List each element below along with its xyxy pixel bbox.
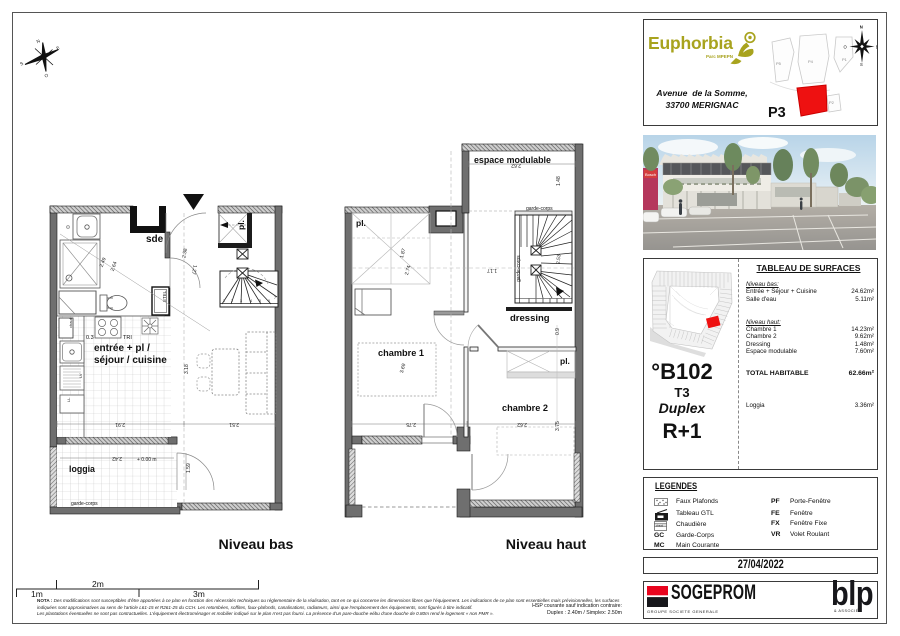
svg-text:garde-corps: garde-corps [526,206,553,212]
svg-text:2.51: 2.51 [229,421,239,427]
svg-text:O: O [44,72,50,78]
svg-text:chambre 1: chambre 1 [378,348,424,358]
svg-text:loggia: loggia [69,464,95,474]
svg-text:dressing: dressing [510,313,550,324]
svg-text:sde: sde [146,234,164,245]
svg-text:1.59: 1.59 [186,463,192,473]
svg-text:chauf: chauf [68,317,73,328]
svg-text:2.53: 2.53 [556,254,563,264]
svg-text:+ 0.00 m: + 0.00 m [137,457,157,463]
svg-text:0.9: 0.9 [555,328,561,335]
svg-text:1.87: 1.87 [399,248,407,259]
svg-text:entrée + pl /: entrée + pl / [94,343,150,354]
svg-text:1.27: 1.27 [190,264,198,275]
svg-text:LL: LL [66,397,71,402]
svg-text:N: N [860,25,863,30]
svg-text:2.74: 2.74 [404,265,412,276]
svg-text:chaud: chaud [656,523,664,527]
svg-text:TRI: TRI [123,335,132,341]
svg-text:1.17: 1.17 [487,267,497,273]
svg-text:E: E [876,44,877,49]
svg-text:1.48: 1.48 [556,176,562,186]
svg-text:0.3: 0.3 [86,335,94,341]
svg-text:6: 6 [268,299,270,303]
svg-text:7: 7 [274,296,276,300]
svg-text:garde-corps: garde-corps [516,255,522,282]
svg-text:2: 2 [231,299,233,303]
svg-text:2.75: 2.75 [406,421,416,427]
svg-text:2m: 2m [92,579,104,589]
svg-text:2.64: 2.64 [110,261,119,272]
svg-text:pl.: pl. [560,356,570,366]
svg-text:chambre 2: chambre 2 [502,403,548,413]
svg-text:5: 5 [259,299,261,303]
svg-text:2.38: 2.38 [181,248,189,259]
svg-text:2.62: 2.62 [511,162,521,168]
svg-text:2.62: 2.62 [517,421,527,427]
svg-text:3.69: 3.69 [399,363,407,374]
svg-text:garde-corps: garde-corps [71,501,98,507]
svg-text:E: E [56,45,61,51]
svg-text:P5: P5 [776,61,782,66]
svg-text:3: 3 [240,299,242,303]
svg-text:2.42: 2.42 [112,455,122,461]
svg-text:4: 4 [250,299,252,303]
svg-text:S: S [860,62,863,67]
svg-text:S: S [19,61,24,67]
svg-text:3.18: 3.18 [184,364,190,374]
svg-text:P4: P4 [808,59,814,64]
svg-text:pl.: pl. [356,218,366,228]
svg-text:P2: P2 [829,100,835,105]
svg-text:P1: P1 [842,57,848,62]
svg-text:2.91: 2.91 [115,421,125,427]
svg-text:1: 1 [223,299,225,303]
svg-text:LV: LV [78,373,83,378]
svg-text:3.75: 3.75 [555,421,561,431]
svg-text:Bosch: Bosch [645,172,656,177]
svg-text:N: N [36,38,41,44]
svg-text:séjour / cuisine: séjour / cuisine [94,355,167,366]
